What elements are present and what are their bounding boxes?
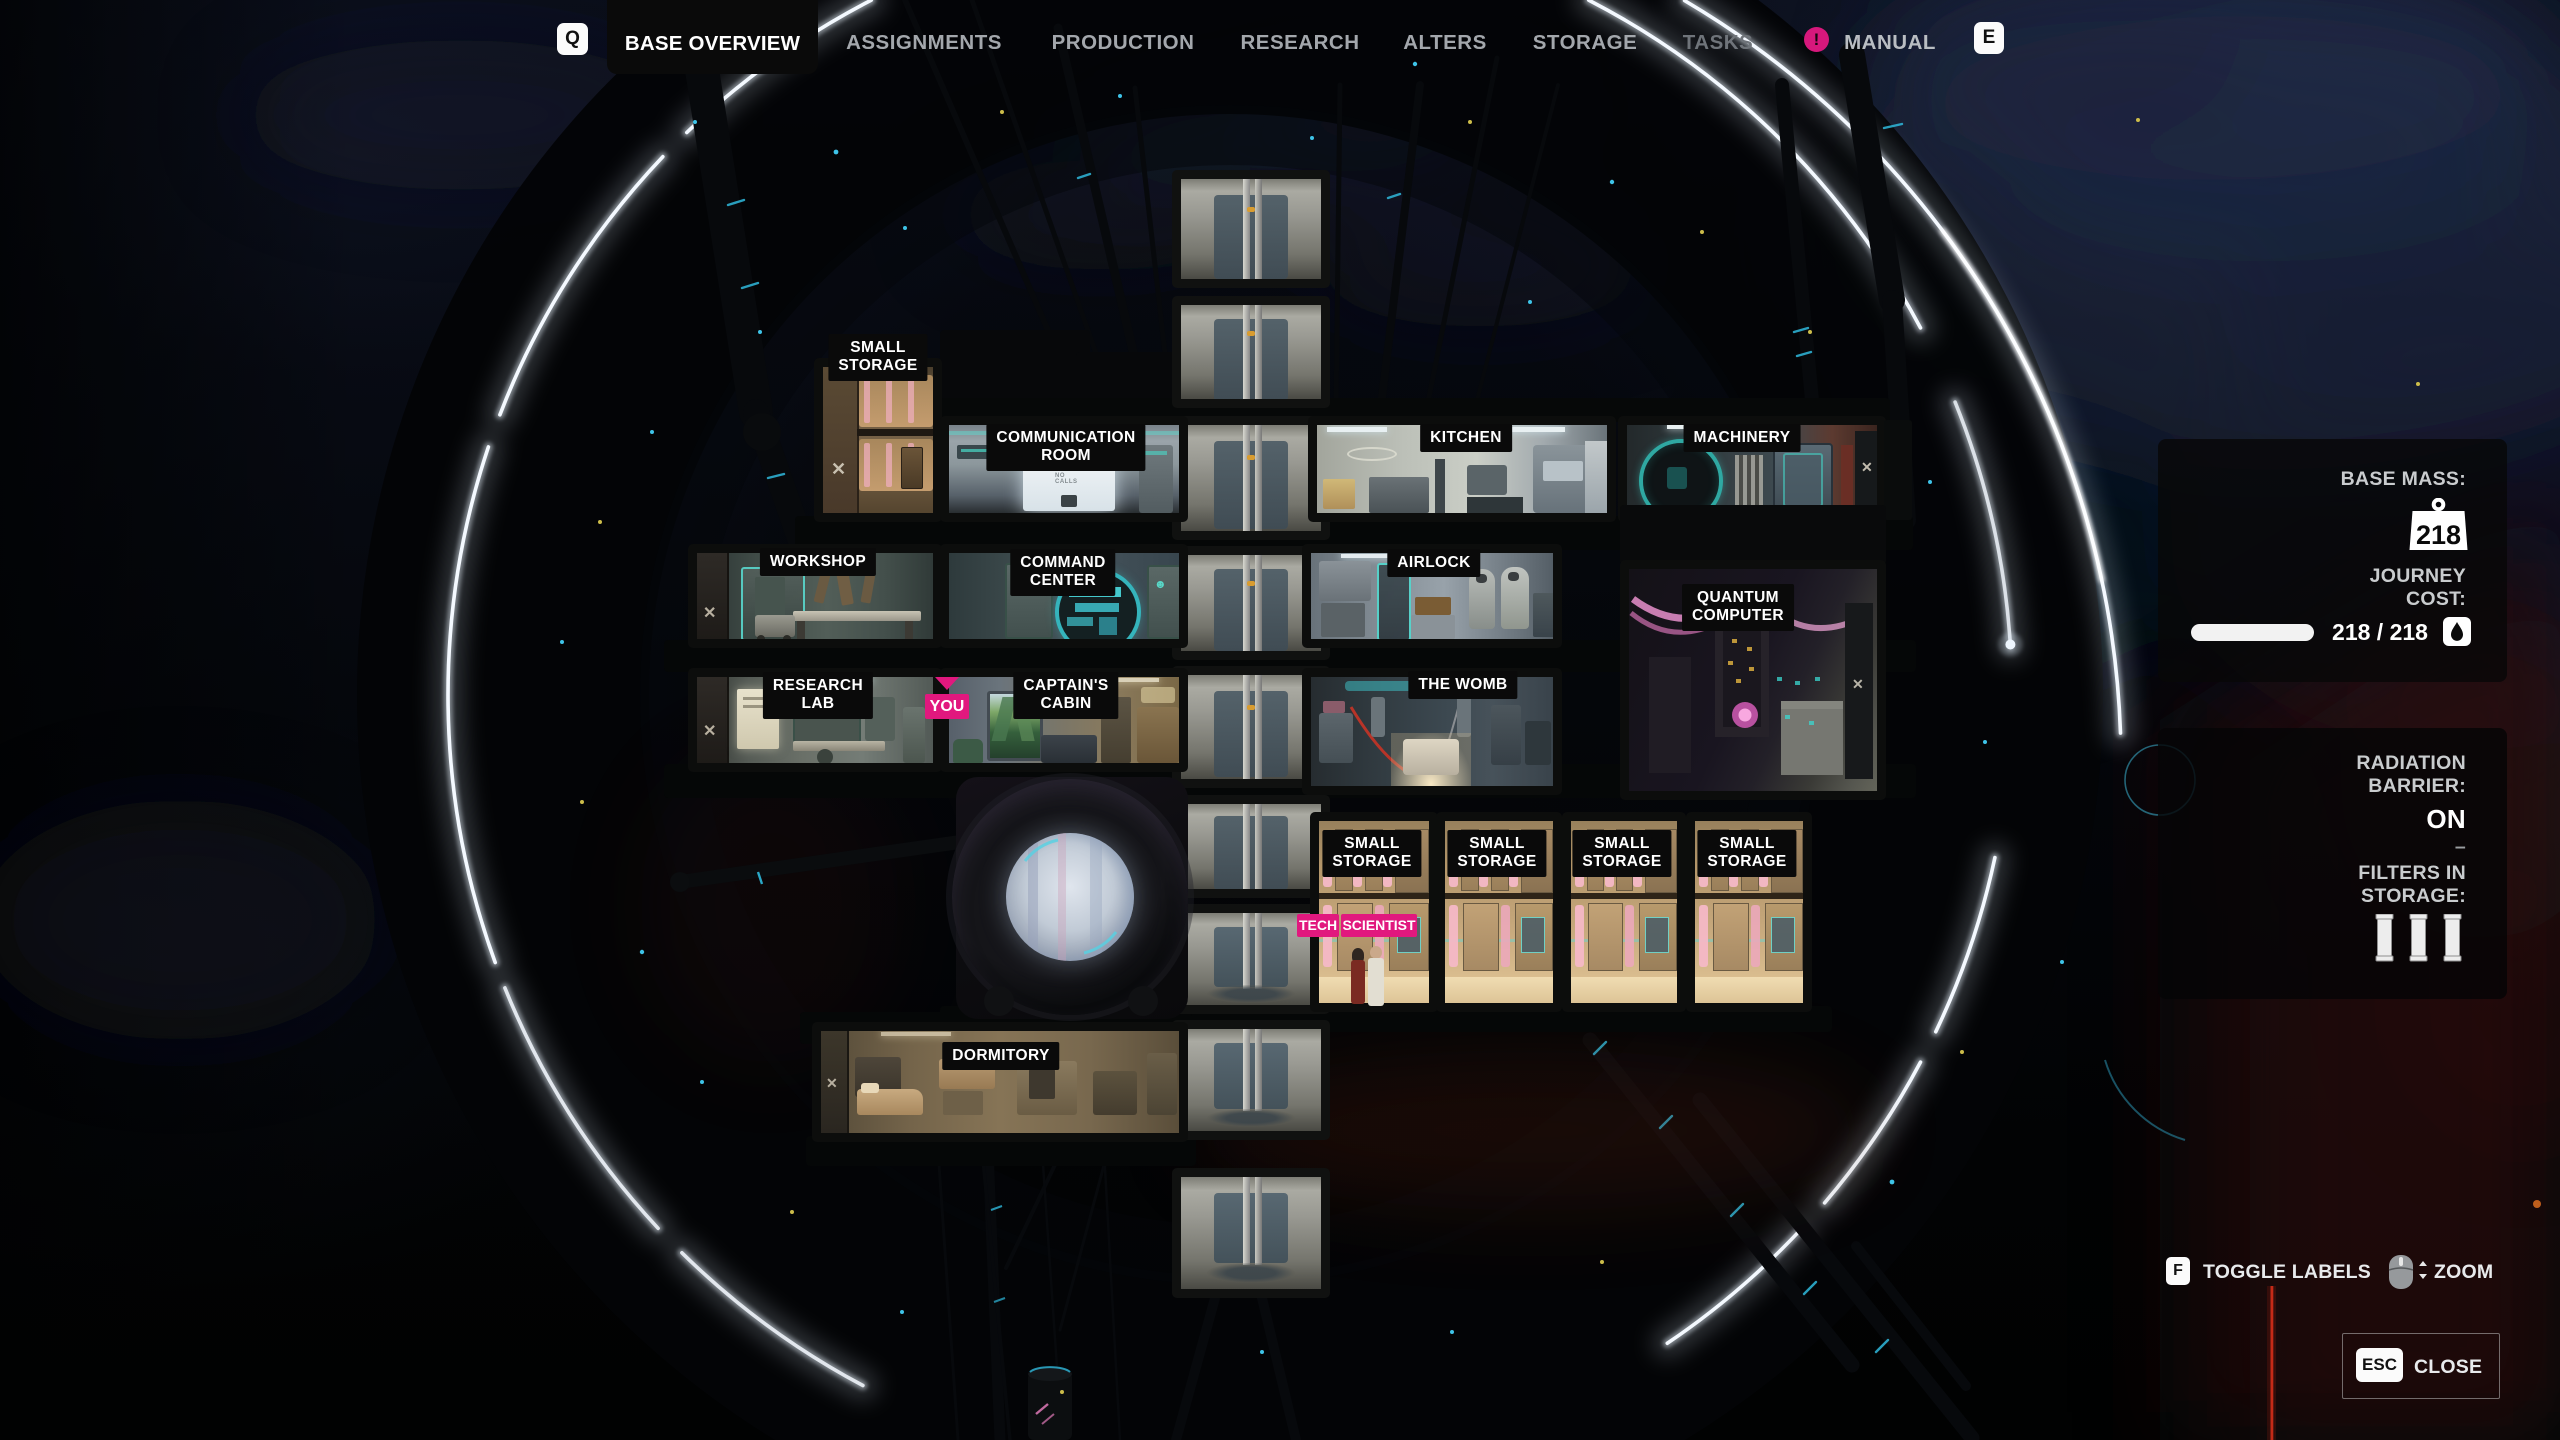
svg-text:218: 218 — [2416, 520, 2461, 550]
svg-text:✕: ✕ — [1852, 676, 1864, 692]
